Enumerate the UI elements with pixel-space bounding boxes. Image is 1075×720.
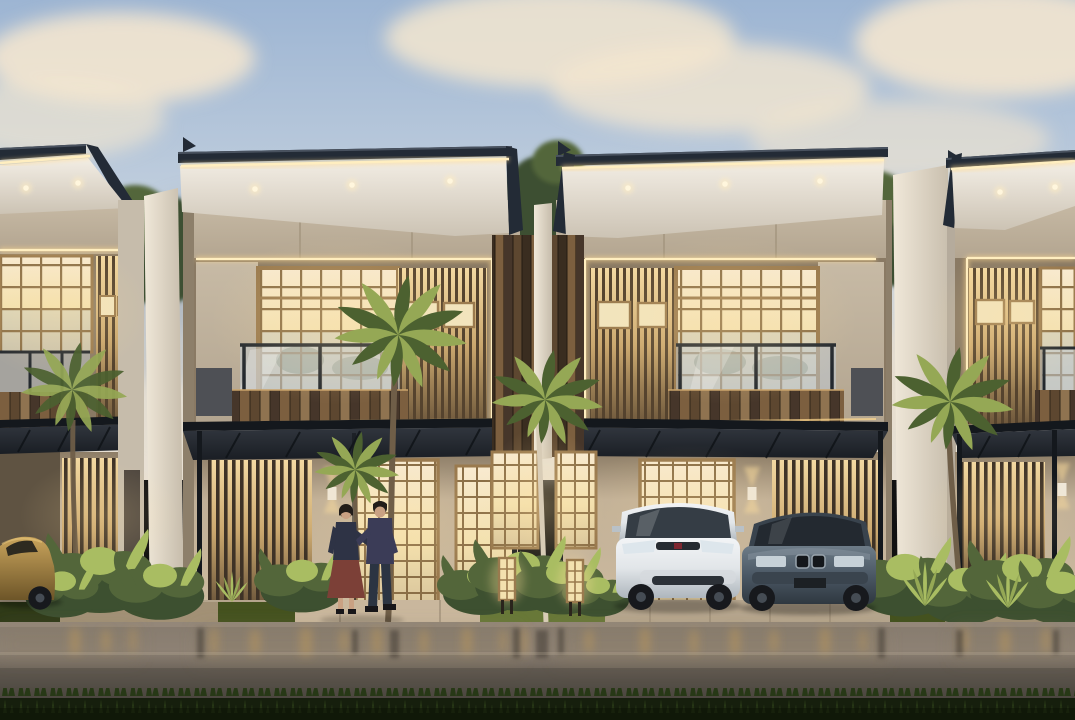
white-hatchback [612,503,744,613]
soffit-downlight [1049,181,1061,193]
kidney-grille [812,555,825,568]
headlight [834,556,864,567]
soffit-downlight [20,182,32,194]
soffit-downlight [622,182,634,194]
soffit-downlight [346,179,358,191]
soffit-downlight [72,177,84,189]
soffit-downlight [994,186,1006,198]
soffit-downlight [719,178,731,190]
honda-badge [674,543,682,549]
gray-panel [196,368,232,416]
soffit-downlight [249,183,261,195]
soffit-downlight [814,175,826,187]
kidney-grille [796,555,809,568]
gray-panel [851,368,883,416]
soffit-downlight [444,175,456,187]
headlight [756,556,786,567]
render-canvas [0,0,1075,720]
dark-sedan [740,512,876,615]
architectural-rendering [0,0,1075,720]
foreground-lawn [0,688,1075,720]
curb [0,622,1075,627]
license-plate [794,578,826,588]
